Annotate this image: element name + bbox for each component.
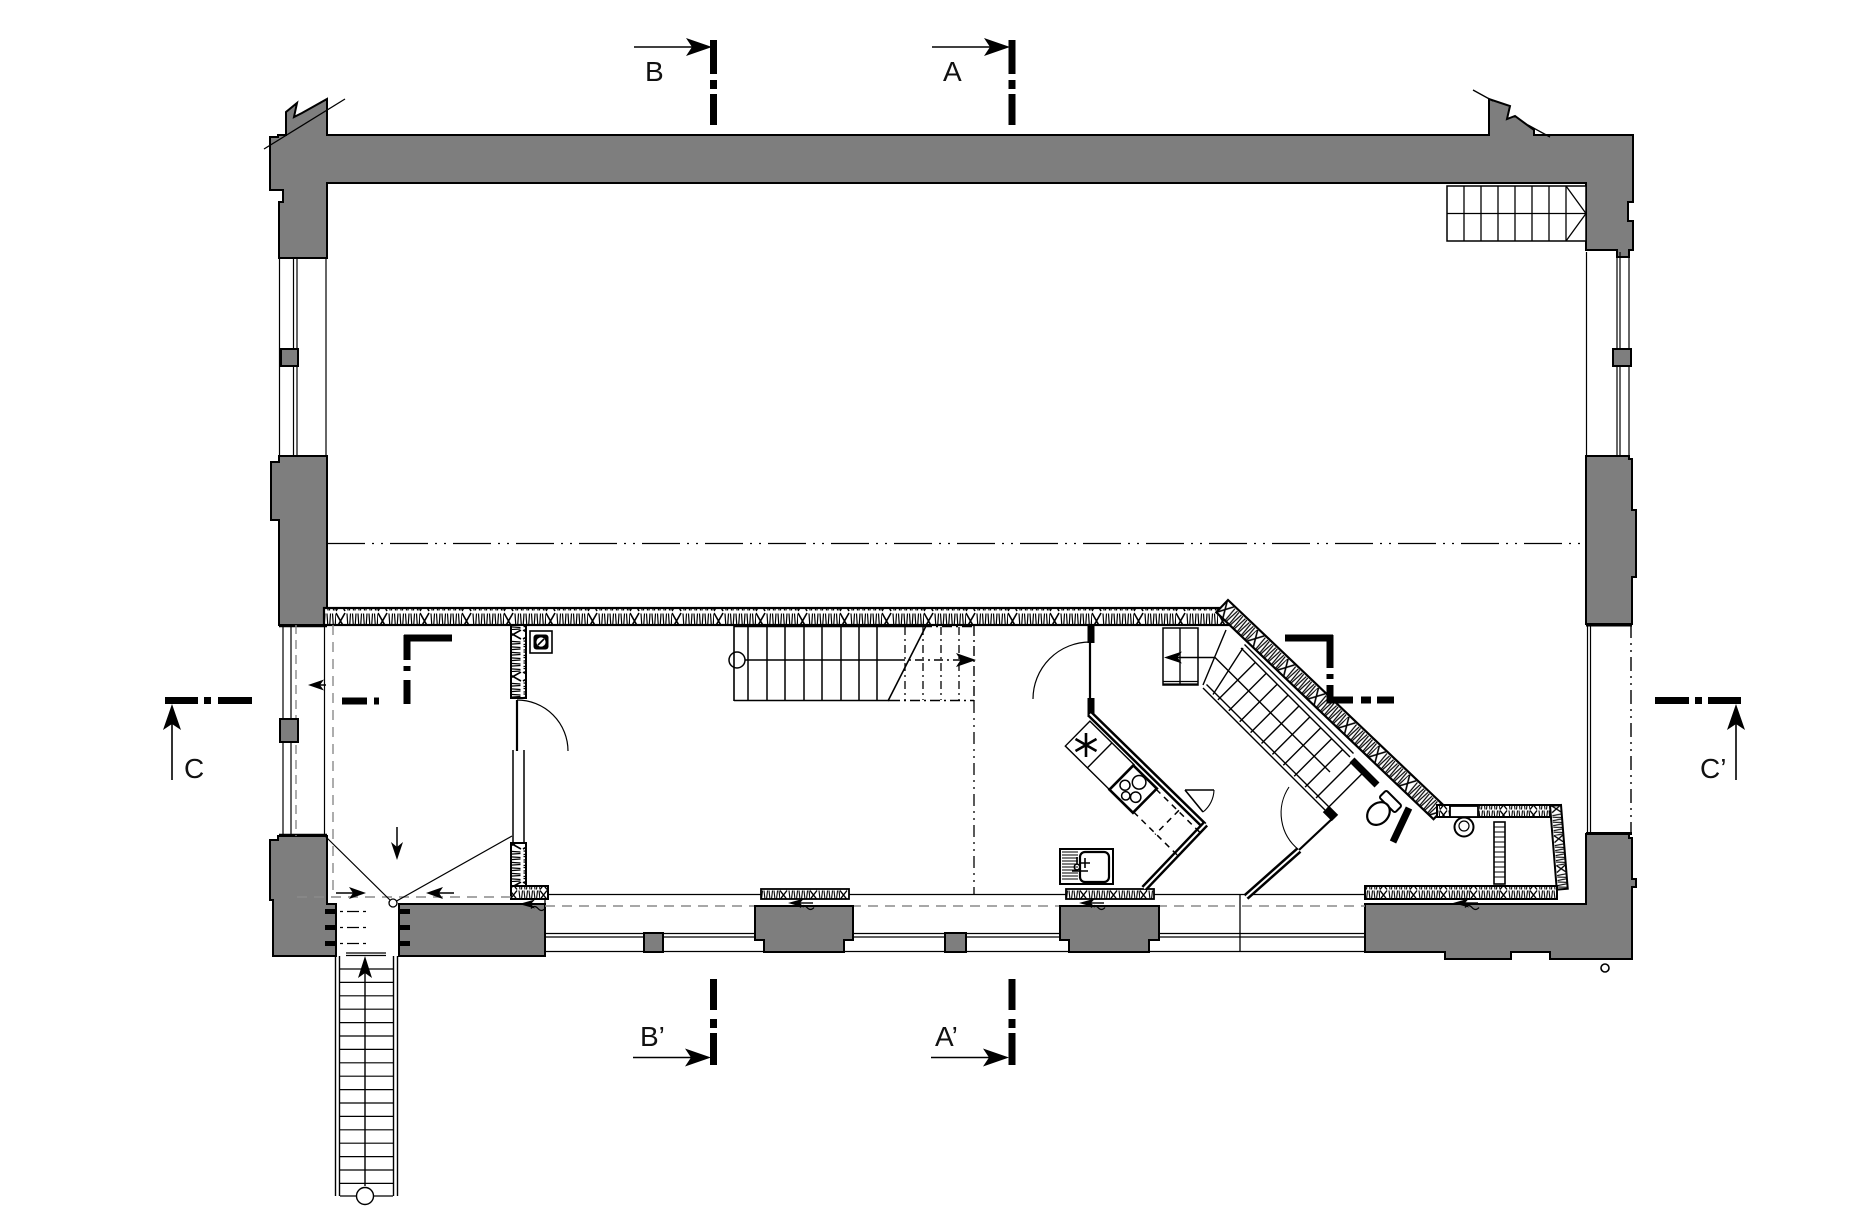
svg-text:C’: C’ — [1700, 753, 1726, 784]
svg-text:B: B — [645, 56, 664, 87]
svg-text:C: C — [184, 753, 204, 784]
svg-text:A’: A’ — [935, 1021, 958, 1052]
svg-text:A: A — [943, 56, 962, 87]
svg-text:B’: B’ — [640, 1021, 665, 1052]
